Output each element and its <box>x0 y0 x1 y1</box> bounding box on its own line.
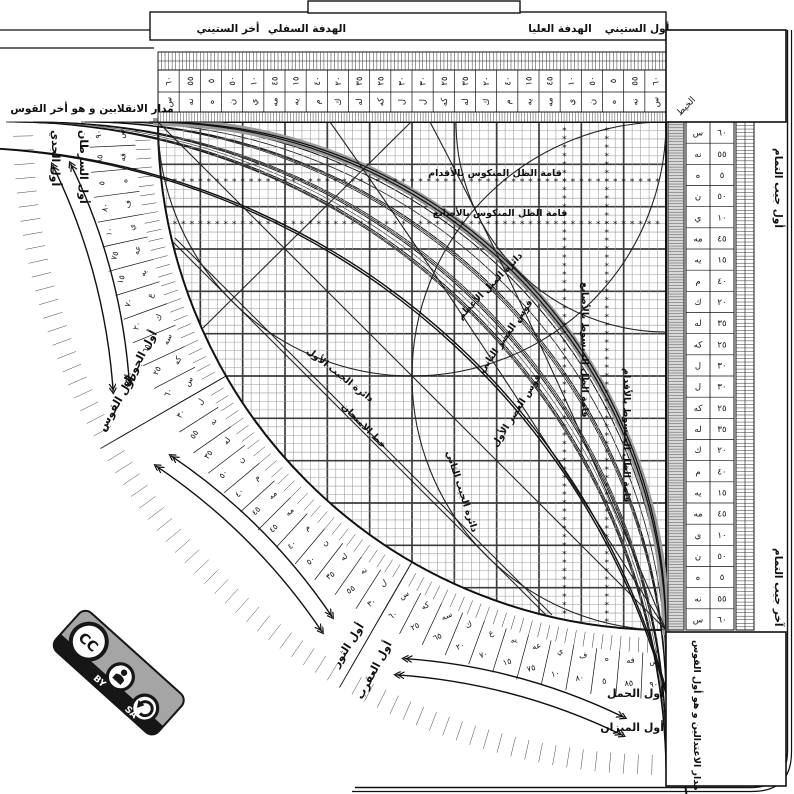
limb-number: ٤٥ <box>267 522 279 534</box>
limb-number: ١٥ <box>502 656 513 667</box>
top-left-rules <box>0 30 154 48</box>
star-marker: * <box>604 177 609 187</box>
limb-abjad: له <box>221 436 232 447</box>
star-marker: * <box>511 220 516 230</box>
cosine-abjad: مه <box>693 234 702 244</box>
limb-tick <box>278 474 289 484</box>
cosine-abjad: ل <box>695 383 701 393</box>
limb-abjad: ك <box>153 313 164 322</box>
checker-tick <box>80 402 98 411</box>
star-marker: * <box>596 220 601 230</box>
limb-tick <box>149 238 164 241</box>
checker-tick <box>525 740 529 760</box>
limb-number: ٥٥ <box>345 584 357 596</box>
checker-tick <box>291 641 302 657</box>
limb-tick <box>529 620 533 634</box>
limb-tick <box>442 590 448 604</box>
sittini-number: ١٠ <box>249 76 259 85</box>
limb-tick <box>231 418 243 427</box>
limb-tick <box>574 630 577 645</box>
limb-tick <box>226 411 238 419</box>
sittini-abjad: ه <box>609 100 619 104</box>
sittini-number: ٦٠ <box>165 76 175 85</box>
star-marker: * <box>604 618 609 628</box>
limb-cell-divider <box>541 640 551 685</box>
limb-abjad: كه <box>172 355 184 366</box>
star-marker: * <box>240 220 245 230</box>
sittini-number: ٢٥ <box>376 76 386 85</box>
inverted-feet-label: قامة الظل المنكوس بالأقدام <box>428 167 562 179</box>
limb-number: ٥٥ <box>188 428 200 440</box>
star-marker: * <box>588 220 593 230</box>
limb-tick <box>450 593 456 607</box>
star-marker: * <box>647 177 652 187</box>
cosine-number: ٦٠ <box>717 615 726 625</box>
cosine-number: ٣٥ <box>717 425 726 435</box>
star-marker: * <box>638 220 643 230</box>
limb-tick <box>145 220 160 223</box>
checker-tick <box>280 632 292 648</box>
solstice-label: مدار الانقلابين و هو أخر القوس <box>10 101 173 115</box>
arrowband-line <box>85 122 666 703</box>
limb-abjad: كه <box>420 600 431 612</box>
star-marker: * <box>418 177 423 187</box>
checker-tick <box>26 245 46 249</box>
star-marker: * <box>215 220 220 230</box>
sittini-abjad: س <box>651 97 661 107</box>
sittini-abjad: مه <box>270 97 280 106</box>
star-marker: * <box>435 220 440 230</box>
checker-tick <box>148 507 164 519</box>
limb-tick <box>476 604 481 618</box>
star-marker: * <box>393 220 398 230</box>
star-marker: * <box>410 177 415 187</box>
checker-tick <box>483 730 489 749</box>
limb-tick <box>620 636 621 651</box>
star-marker: * <box>350 177 355 187</box>
limb-number: ٤٠ <box>233 487 245 499</box>
star-marker: * <box>249 177 254 187</box>
checker-tick <box>340 670 350 687</box>
star-marker: * <box>401 220 406 230</box>
limb-abjad: ع <box>487 628 495 638</box>
limb-abjad: مه <box>283 505 295 517</box>
sittini-number: ٣٥ <box>461 76 471 85</box>
cosine-abjad: ك <box>694 446 701 456</box>
star-marker: * <box>477 220 482 230</box>
limb-number: ٤٥ <box>250 505 262 517</box>
cosine-abjad: كه <box>694 404 704 414</box>
limb-tick <box>170 307 184 312</box>
limb-tick <box>556 627 559 642</box>
limb-tick <box>189 348 202 355</box>
limb-abjad: له <box>339 551 350 562</box>
limb-number: ٨٠ <box>575 673 585 683</box>
limb-abjad: ل <box>379 578 389 589</box>
limb-abjad: س <box>398 589 411 602</box>
limb-number: ٣٥ <box>202 448 214 460</box>
star-marker: * <box>520 220 525 230</box>
cosine-abjad: م <box>695 277 700 287</box>
sittini-abjad: يه <box>292 98 302 106</box>
star-marker: * <box>232 220 237 230</box>
limb-abjad: ن <box>236 455 247 465</box>
cosine-number: ٥٠ <box>717 552 726 562</box>
cosine-number: ١٠ <box>717 213 726 223</box>
limb-tick <box>136 158 151 159</box>
limb-number: ٦٥ <box>432 631 443 643</box>
checker-tick <box>100 439 117 449</box>
star-marker: * <box>359 220 364 230</box>
cosine-abjad: مه <box>693 510 702 520</box>
checker-tick <box>194 560 208 574</box>
sittini-abjad: ي <box>249 98 259 105</box>
star-marker: * <box>300 220 305 230</box>
limb-abjad: عه <box>531 641 542 652</box>
sittini-abjad: ن <box>228 99 238 105</box>
limb-number: ١٠ <box>104 227 114 237</box>
star-marker: * <box>469 220 474 230</box>
cosine-number: ٣٠ <box>717 383 726 393</box>
checker-tick <box>456 721 462 740</box>
sittini-number: ٦٠ <box>651 76 661 85</box>
sittini-abjad: ل <box>397 99 407 105</box>
checker-tick <box>497 733 502 752</box>
checker-tick <box>214 579 228 593</box>
star-marker: * <box>384 220 389 230</box>
checker-tick <box>14 163 34 164</box>
limb-tick <box>147 229 162 232</box>
limb-tick <box>185 340 199 346</box>
cosine-number: ٢٥ <box>717 404 726 414</box>
checker-tick <box>638 754 639 774</box>
sittini-number: ٥ <box>207 79 217 84</box>
checker-tick <box>303 648 314 665</box>
cosine-abjad: نه <box>695 594 702 604</box>
star-marker: * <box>367 220 372 230</box>
limb-number: ٥٠ <box>305 554 317 566</box>
star-marker: * <box>494 220 499 230</box>
checker-tick <box>246 607 259 622</box>
checker-tick <box>28 259 48 263</box>
limb-tick <box>425 582 432 595</box>
star-marker: * <box>647 220 652 230</box>
cosine-abjad: س <box>693 129 703 139</box>
checker-tick <box>511 737 516 756</box>
limb-number: ٣٠ <box>366 597 378 609</box>
limb-number: ٧٥ <box>526 663 536 674</box>
cc-license-badge[interactable]: CC BY SA <box>49 607 187 739</box>
pivot-corner-block: الخيط <box>666 30 786 122</box>
limb-abjad: م <box>302 523 312 533</box>
star-marker: * <box>325 177 330 187</box>
sittini-number: ٤٠ <box>503 76 513 85</box>
limb-tick <box>361 545 370 557</box>
cosine-abjad: كه <box>694 340 704 350</box>
star-marker: * <box>249 220 254 230</box>
checker-tick <box>609 753 611 773</box>
limb-tick <box>136 149 151 150</box>
limb-tick <box>511 615 515 629</box>
limb-number: ٢٠ <box>131 320 142 331</box>
cosine-abjad: يه <box>695 488 703 498</box>
cosine-abjad: يه <box>695 256 703 266</box>
limb-tick <box>193 356 206 363</box>
star-marker: * <box>384 177 389 187</box>
checker-tick <box>131 485 147 496</box>
checker-tick <box>175 539 190 552</box>
limb-number: ٢٥ <box>151 365 163 377</box>
checker-tick <box>443 717 450 736</box>
cosine-number: ٤٥ <box>717 234 726 244</box>
star-marker: * <box>342 220 347 230</box>
checker-tick <box>74 390 92 398</box>
checker-tick <box>108 450 125 460</box>
limb-abjad: مه <box>266 489 278 501</box>
star-marker: * <box>655 177 660 187</box>
sittini-abjad: له <box>355 98 365 105</box>
limb-number: ٧٠ <box>478 649 489 660</box>
checker-tick <box>225 589 239 604</box>
cosine-number: ٤٠ <box>717 277 726 287</box>
checker-tick <box>429 712 436 731</box>
star-marker: * <box>198 177 203 187</box>
checker-tick <box>43 312 62 318</box>
inverted-digits-label: قامة الظل المنكوس بالأصابع <box>433 207 568 219</box>
limb-abjad: ه <box>604 654 609 663</box>
limb-tick <box>601 634 603 649</box>
sittini-abjad: ن <box>588 99 598 105</box>
sittini-abjad: كه <box>376 97 386 107</box>
limb-number: ٦٠ <box>162 387 174 399</box>
limb-abjad: فه <box>626 656 635 666</box>
checker-tick <box>539 743 543 763</box>
limb-tick <box>592 633 594 648</box>
limb-number: ٨٠ <box>100 203 110 213</box>
limb-cell-divider <box>103 237 148 247</box>
limb-tick <box>339 529 348 541</box>
limb-number: ٩٠ <box>94 130 103 139</box>
checker-tick <box>403 701 411 719</box>
checker-tick <box>15 177 35 179</box>
sight-notch <box>308 1 520 13</box>
limb-tick <box>538 623 542 638</box>
checker-tick <box>623 754 624 774</box>
cosine-number: ٢٠ <box>717 446 726 456</box>
limb-abjad: يه <box>138 269 148 278</box>
star-marker: * <box>571 177 576 187</box>
checker-tick <box>35 286 54 291</box>
limb-abjad: ف <box>123 199 133 209</box>
star-marker: * <box>223 220 228 230</box>
libra-label: أول الميزان <box>600 720 664 734</box>
limb-tick <box>629 637 630 652</box>
limb-number: ٣٥ <box>324 569 336 581</box>
star-marker: * <box>418 220 423 230</box>
sittini-abjad: مه <box>546 97 556 106</box>
cosine-number: ٥٥ <box>717 594 726 604</box>
star-marker: * <box>350 220 355 230</box>
sittini-abjad: نه <box>630 99 640 106</box>
limb-tick <box>143 212 158 215</box>
sittini-abjad: ل <box>419 99 429 105</box>
checker-tick <box>204 570 218 584</box>
limb-cell-divider <box>90 145 136 147</box>
arrowband-line <box>81 122 666 707</box>
star-marker: * <box>562 220 567 230</box>
limb-tick <box>138 176 153 178</box>
limb-abjad: ي <box>127 223 137 231</box>
limb-number: ٣٠ <box>175 408 187 420</box>
extended-feet-label: قامة الظل المبسوط بالأقدام <box>621 368 633 503</box>
limb-tick <box>318 511 328 522</box>
capricorn-label: أول الجدي <box>49 130 63 186</box>
sittini-abjad: نه <box>186 99 196 106</box>
limb-tick <box>583 632 585 647</box>
sittini-number: ٤٥ <box>270 76 280 85</box>
checker-tick <box>17 191 37 193</box>
sittini-abjad: ك <box>334 98 344 105</box>
limb-tick <box>242 433 254 442</box>
limb-tick <box>484 607 489 621</box>
cosine-number: ٣٥ <box>717 319 726 329</box>
sittini-number: ٤٥ <box>546 76 556 85</box>
limb-cell-divider <box>566 645 574 690</box>
star-marker: * <box>266 177 271 187</box>
sittini-abjad: كه <box>440 97 450 107</box>
limb-abjad: ي <box>556 646 564 656</box>
cosine-abjad: ل <box>695 361 701 371</box>
star-marker: * <box>528 220 533 230</box>
limb-tick <box>259 454 270 464</box>
cosine-number: ١٠ <box>717 531 726 541</box>
limb-abjad: س <box>182 375 195 388</box>
sittini-abjad: يه <box>524 98 534 106</box>
checker-tick <box>32 272 51 277</box>
checker-tick <box>390 696 398 714</box>
sittini-abjad: م <box>313 99 323 104</box>
limb-tick <box>433 586 440 599</box>
checker-tick <box>185 550 200 564</box>
star-marker: * <box>401 177 406 187</box>
star-marker: * <box>257 177 262 187</box>
cosine-number: ٣٠ <box>717 361 726 371</box>
star-marker: * <box>655 220 660 230</box>
sittini-number: ٥٠ <box>588 76 598 85</box>
limb-tick <box>502 613 507 627</box>
star-marker: * <box>630 177 635 187</box>
checker-tick <box>377 690 386 708</box>
limb-tick <box>248 440 260 449</box>
limb-abjad: فه <box>118 153 128 162</box>
limb-tick <box>291 487 302 498</box>
star-marker: * <box>444 220 449 230</box>
checker-tick <box>470 726 476 745</box>
star-marker: * <box>190 220 195 230</box>
limb-tick <box>304 499 314 510</box>
limb-tick <box>354 539 363 551</box>
extended-digits-label: قامة الظل المبسوط بالأصابع <box>579 282 591 417</box>
checker-tick <box>416 707 424 725</box>
sittini-number: ٥ <box>609 79 619 84</box>
limb-abjad: سه <box>440 609 454 622</box>
cosine-number: ٦٠ <box>717 129 726 139</box>
star-marker: * <box>207 177 212 187</box>
checker-tick <box>19 205 39 208</box>
sagittarius-label: أول القوس <box>94 373 137 434</box>
limb-tick <box>547 625 550 640</box>
star-marker: * <box>317 177 322 187</box>
cosine-start-label: أول جيب التمام <box>772 148 786 228</box>
star-marker: * <box>240 177 245 187</box>
cosine-number: ٢٠ <box>717 298 726 308</box>
sittini-abjad: له <box>461 98 471 105</box>
cosine-scale: س٦٠نه٥٥ه٥ن٥٠ي١٠مه٤٥يه١٥م٤٠ك٢٠له٣٥كه٢٥ل٣٠… <box>668 122 754 630</box>
star-marker: * <box>579 177 584 187</box>
cosine-number: ٥ <box>720 171 725 181</box>
limb-tick <box>647 638 648 653</box>
star-marker: * <box>274 177 279 187</box>
limb-abjad: ل <box>195 397 206 407</box>
sittini-number: ١٥ <box>524 76 534 85</box>
scorpio-label: أول العقرب <box>352 638 394 701</box>
star-marker: * <box>308 177 313 187</box>
star-marker: * <box>207 220 212 230</box>
limb-cell-divider <box>94 191 140 197</box>
checker-tick <box>315 656 326 673</box>
star-marker: * <box>621 177 626 187</box>
limb-tick <box>638 637 639 652</box>
limb-number: ٦٠ <box>387 609 399 621</box>
star-marker: * <box>359 177 364 187</box>
limb-tick <box>142 203 157 205</box>
star-marker: * <box>376 220 381 230</box>
cosine-abjad: له <box>694 319 701 329</box>
star-marker: * <box>266 220 271 230</box>
sittini-abjad: ك <box>482 98 492 105</box>
star-marker: * <box>596 177 601 187</box>
sittini-scale: ٦٠س٥٥نه٥ه٥٠ن١٠ي٤٥مه١٥يه٤٠م٢٠ك٣٥له٢٥كه٣٠ل… <box>158 52 666 122</box>
checker-tick <box>268 624 280 640</box>
sittini-number: ٢٠ <box>334 76 344 85</box>
cosine-abjad: س <box>693 615 703 625</box>
cosine-number: ١٥ <box>717 488 726 498</box>
cosine-abjad: له <box>694 425 701 435</box>
sine-quadrant-diagram: ص٩٠فه٨٥ه٥ف٨٠ي١٠عه٧٥يه١٥ع٧٠ك٢٠سه٦٥كه٢٥س٦٠… <box>0 0 794 794</box>
star-marker: * <box>486 220 491 230</box>
limb-tick <box>174 315 188 321</box>
star-marker: * <box>537 220 542 230</box>
limb-tick <box>346 534 355 546</box>
checker-tick <box>57 351 76 358</box>
limb-tick <box>417 578 424 591</box>
limb-tick <box>167 298 181 303</box>
cancer-label: أول السرطان <box>77 130 91 204</box>
sittini-number: ٥٥ <box>186 76 196 85</box>
limb-number: ١٠ <box>550 668 560 679</box>
star-marker: * <box>291 177 296 187</box>
checker-tick <box>52 338 71 345</box>
checker-tick <box>581 750 584 770</box>
cosine-number: ٥٥ <box>717 150 726 160</box>
limb-tick <box>181 332 195 338</box>
star-marker: * <box>181 220 186 230</box>
limb-tick <box>565 629 568 644</box>
checker-tick <box>553 745 556 765</box>
checker-tick <box>115 462 132 473</box>
taurus-label: أول الثور <box>328 620 367 670</box>
star-marker: * <box>579 220 584 230</box>
